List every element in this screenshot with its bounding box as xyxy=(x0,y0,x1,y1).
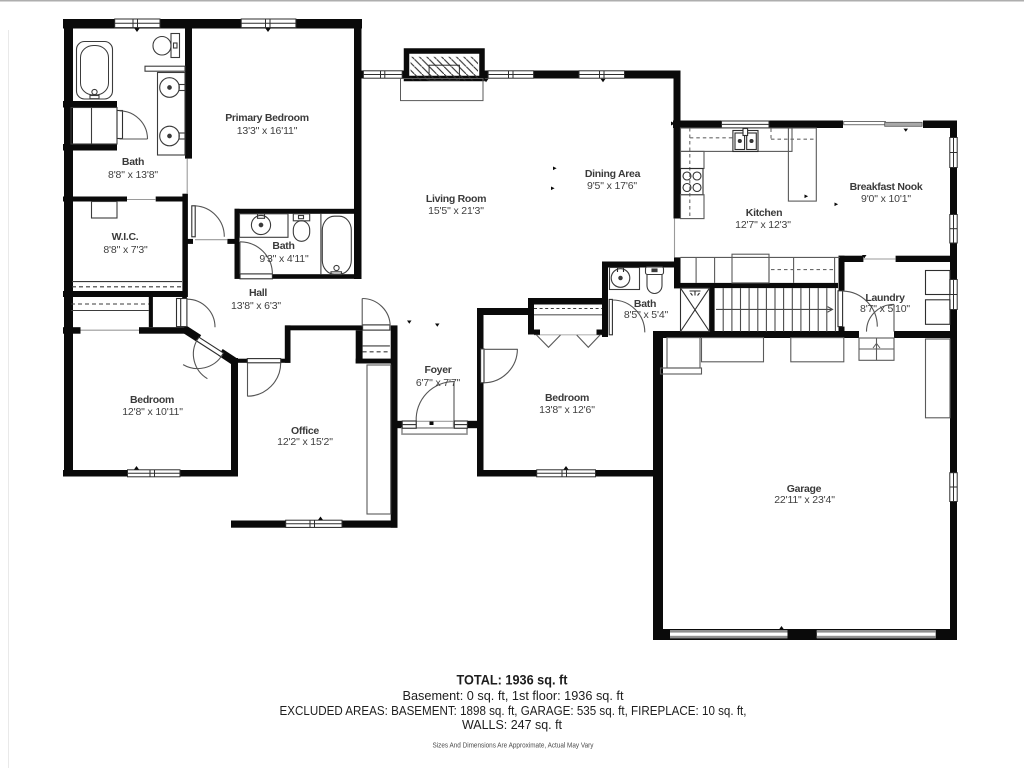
svg-text:Foyer: Foyer xyxy=(424,364,451,376)
svg-text:Bedroom: Bedroom xyxy=(545,392,589,404)
svg-text:8'8" x 13'8": 8'8" x 13'8" xyxy=(108,169,158,181)
svg-text:13'8" x 12'6": 13'8" x 12'6" xyxy=(539,404,595,416)
svg-text:W.I.C.: W.I.C. xyxy=(112,231,139,243)
svg-text:6'7" x 7'7": 6'7" x 7'7" xyxy=(416,377,461,389)
svg-text:TOTAL: 1936 sq. ft: TOTAL: 1936 sq. ft xyxy=(457,672,568,688)
svg-text:12'2" x 15'2": 12'2" x 15'2" xyxy=(277,436,333,448)
svg-text:8'7" x 5'10": 8'7" x 5'10" xyxy=(860,303,910,315)
svg-text:9'0" x 10'1": 9'0" x 10'1" xyxy=(861,193,911,205)
svg-text:Breakfast Nook: Breakfast Nook xyxy=(850,181,923,193)
svg-text:12'7" x 12'3": 12'7" x 12'3" xyxy=(735,219,791,231)
svg-text:Kitchen: Kitchen xyxy=(746,207,782,219)
svg-text:Basement: 0 sq. ft, 1st floor:: Basement: 0 sq. ft, 1st floor: 1936 sq. … xyxy=(403,688,624,703)
svg-text:Bath: Bath xyxy=(122,156,144,168)
svg-text:Bedroom: Bedroom xyxy=(130,394,174,406)
svg-text:Living Room: Living Room xyxy=(426,193,486,205)
svg-text:8'8" x 7'3": 8'8" x 7'3" xyxy=(103,244,148,256)
svg-text:22'11" x 23'4": 22'11" x 23'4" xyxy=(774,494,835,506)
svg-text:Dining Area: Dining Area xyxy=(585,168,641,180)
svg-text:EXCLUDED AREAS: BASEMENT: 1898: EXCLUDED AREAS: BASEMENT: 1898 sq. ft, G… xyxy=(280,703,747,718)
svg-text:Primary Bedroom: Primary Bedroom xyxy=(225,112,309,124)
svg-text:15'5" x 21'3": 15'5" x 21'3" xyxy=(428,205,484,217)
svg-text:9'5" x 17'6": 9'5" x 17'6" xyxy=(587,180,637,192)
svg-text:9'3" x 4'11": 9'3" x 4'11" xyxy=(259,253,309,265)
svg-text:WALLS: 247 sq. ft: WALLS: 247 sq. ft xyxy=(462,717,562,732)
svg-text:8'5" x 5'4": 8'5" x 5'4" xyxy=(624,309,669,321)
svg-text:Hall: Hall xyxy=(249,287,267,299)
svg-text:12'8" x 10'11": 12'8" x 10'11" xyxy=(122,406,183,418)
svg-text:Sizes And Dimensions Are Appro: Sizes And Dimensions Are Approximate, Ac… xyxy=(433,743,594,750)
svg-text:13'3" x 16'11": 13'3" x 16'11" xyxy=(237,125,298,137)
svg-text:13'8" x 6'3": 13'8" x 6'3" xyxy=(231,300,281,312)
svg-text:Bath: Bath xyxy=(272,240,294,252)
